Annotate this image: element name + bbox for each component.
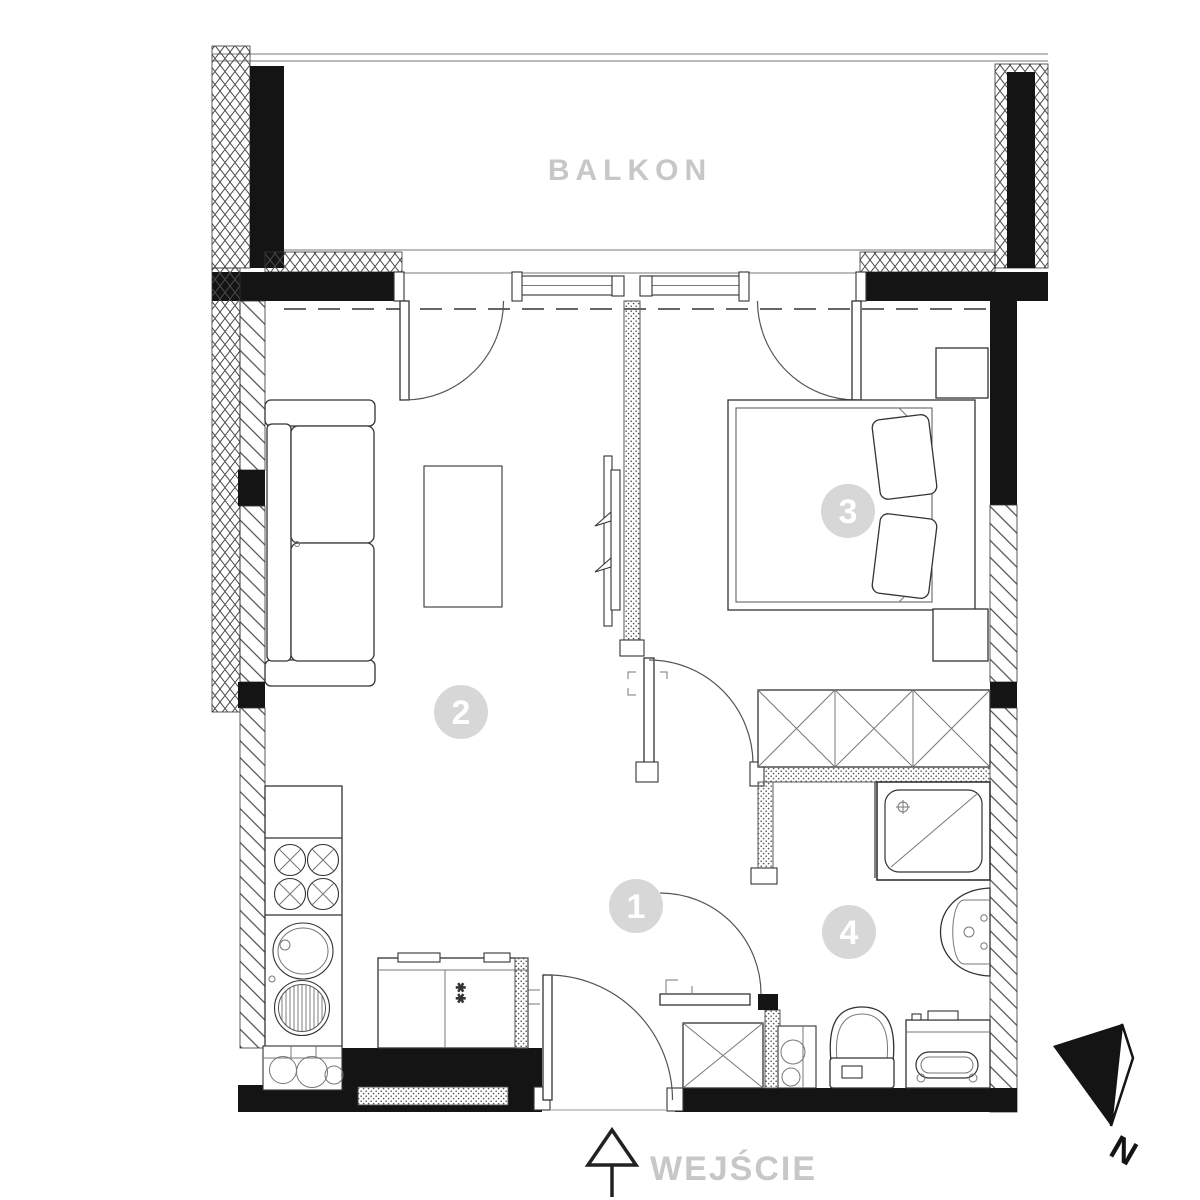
room-badge-2: 2: [434, 685, 488, 739]
bedroom-door: [628, 658, 753, 782]
tv: [595, 456, 620, 626]
hall-cabinet: [683, 1023, 763, 1088]
entrance-door: [524, 975, 673, 1100]
entrance-label: WEJŚCIE: [650, 1150, 817, 1188]
entrance-arrow-icon: [588, 1130, 636, 1165]
north-arrow: N: [1053, 1024, 1144, 1173]
nightstand-bottom: [933, 609, 988, 661]
floor-plan: BALKON: [0, 0, 1200, 1200]
right-wall: [990, 301, 1017, 1112]
kitchen-base-unit: [263, 1046, 343, 1090]
balcony-wall-left: [250, 66, 284, 268]
appliance-mark: ✱✱: [453, 982, 468, 1004]
svg-text:4: 4: [840, 914, 859, 952]
bathroom-cabinet: [778, 1026, 816, 1088]
sofa: [265, 400, 375, 686]
bedroom-wardrobe: [758, 690, 990, 767]
room-badge-3: 3: [821, 484, 875, 538]
svg-text:1: 1: [627, 888, 646, 926]
bathroom-door: [660, 893, 761, 1005]
kitchen-island: ✱✱: [378, 953, 528, 1048]
balcony-wall-left-insulation: [212, 46, 250, 268]
north-wall: [212, 252, 1048, 309]
north-label: N: [1103, 1128, 1143, 1173]
entrance-marker: WEJŚCIE: [588, 1130, 817, 1197]
nightstand-top: [936, 348, 988, 398]
washbasin: [941, 888, 991, 976]
left-wall: [212, 268, 265, 1048]
room-badge-1: 1: [609, 879, 663, 933]
svg-text:3: 3: [839, 493, 858, 531]
bathroom-door-handle: [666, 980, 692, 994]
svg-text:2: 2: [452, 694, 471, 732]
pillow: [871, 414, 937, 500]
toilet-button: [842, 1066, 862, 1078]
room-badge-4: 4: [822, 905, 876, 959]
washing-machine: [906, 1011, 990, 1088]
kitchen-counter: [263, 786, 343, 1090]
shower: [875, 782, 990, 880]
balcony-door-left: [400, 301, 504, 400]
toilet: [830, 1007, 894, 1088]
bottom-wall: [238, 1048, 1017, 1112]
balcony: BALKON: [212, 46, 1048, 268]
pillow: [871, 513, 937, 599]
balcony-window-left: [516, 276, 612, 295]
partition-wall: [620, 301, 644, 656]
balcony-wall-right: [1007, 72, 1035, 268]
balcony-door-right: [758, 301, 862, 400]
balcony-window-right: [648, 276, 740, 295]
coffee-table: [424, 466, 502, 607]
balcony-label: BALKON: [548, 154, 712, 187]
